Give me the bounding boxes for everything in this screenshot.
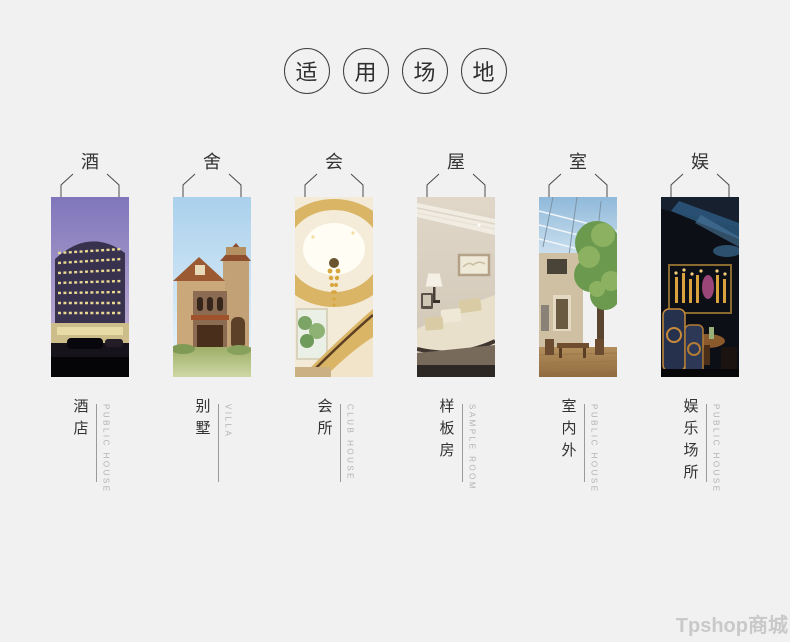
venue-column-villa: 舍 xyxy=(173,152,251,513)
title-char-circle: 地 xyxy=(461,48,507,94)
entertainment-photo xyxy=(661,197,739,377)
bracket-decoration-icon xyxy=(539,151,617,197)
venue-column-sample-room: 屋 xyxy=(417,152,495,513)
venue-column-hotel: 酒 xyxy=(51,152,129,513)
venue-label: 样板房 SAMPLE ROOM xyxy=(417,398,495,513)
title-char-circle: 用 xyxy=(343,48,389,94)
title-char-circle: 场 xyxy=(402,48,448,94)
label-divider xyxy=(218,404,219,482)
sample-room-photo xyxy=(417,197,495,377)
title-char-circle: 适 xyxy=(284,48,330,94)
venue-name-en: PUBLIC HOUSE xyxy=(712,404,721,513)
title-char: 场 xyxy=(413,55,435,87)
bracket-decoration-icon xyxy=(173,151,251,197)
venue-name-zh: 酒店 xyxy=(70,398,91,513)
venue-name-en: SAMPLE ROOM xyxy=(468,404,477,513)
venue-name-zh: 娱乐场所 xyxy=(680,398,701,513)
venue-name-zh: 别墅 xyxy=(192,398,213,513)
bracket-decoration-icon xyxy=(295,151,373,197)
venue-column-indoor-outdoor: 室 xyxy=(539,152,617,513)
venue-name-en: VILLA xyxy=(224,404,233,513)
bracket-decoration-icon xyxy=(417,151,495,197)
venue-name-zh: 样板房 xyxy=(436,398,457,513)
label-divider xyxy=(462,404,463,482)
section-title: 适 用 场 地 xyxy=(0,48,790,94)
venue-name-zh: 会所 xyxy=(314,398,335,513)
venue-column-club: 会 xyxy=(295,152,373,513)
club-house-photo xyxy=(295,197,373,377)
title-char: 地 xyxy=(472,55,494,87)
venue-name-zh: 室内外 xyxy=(558,398,579,513)
venue-name-en: PUBLIC HOUSE xyxy=(590,404,599,513)
villa-photo xyxy=(173,197,251,377)
venue-label: 别墅 VILLA xyxy=(173,398,251,513)
bracket-decoration-icon xyxy=(51,151,129,197)
venue-label: 娱乐场所 PUBLIC HOUSE xyxy=(661,398,739,513)
label-divider xyxy=(340,404,341,482)
label-divider xyxy=(584,404,585,482)
venue-grid: 酒 xyxy=(0,152,790,513)
venue-label: 酒店 PUBLIC HOUSE xyxy=(51,398,129,513)
hotel-photo xyxy=(51,197,129,377)
title-char: 适 xyxy=(295,55,317,87)
label-divider xyxy=(96,404,97,482)
venue-label: 室内外 PUBLIC HOUSE xyxy=(539,398,617,513)
venue-label: 会所 CLUB HOUSE xyxy=(295,398,373,513)
indoor-outdoor-photo xyxy=(539,197,617,377)
venue-column-entertainment: 娱 xyxy=(661,152,739,513)
tpshop-watermark: Tpshop商城 xyxy=(676,609,788,638)
venue-name-en: PUBLIC HOUSE xyxy=(102,404,111,513)
venue-name-en: CLUB HOUSE xyxy=(346,404,355,513)
title-char: 用 xyxy=(354,55,376,87)
label-divider xyxy=(706,404,707,482)
bracket-decoration-icon xyxy=(661,151,739,197)
